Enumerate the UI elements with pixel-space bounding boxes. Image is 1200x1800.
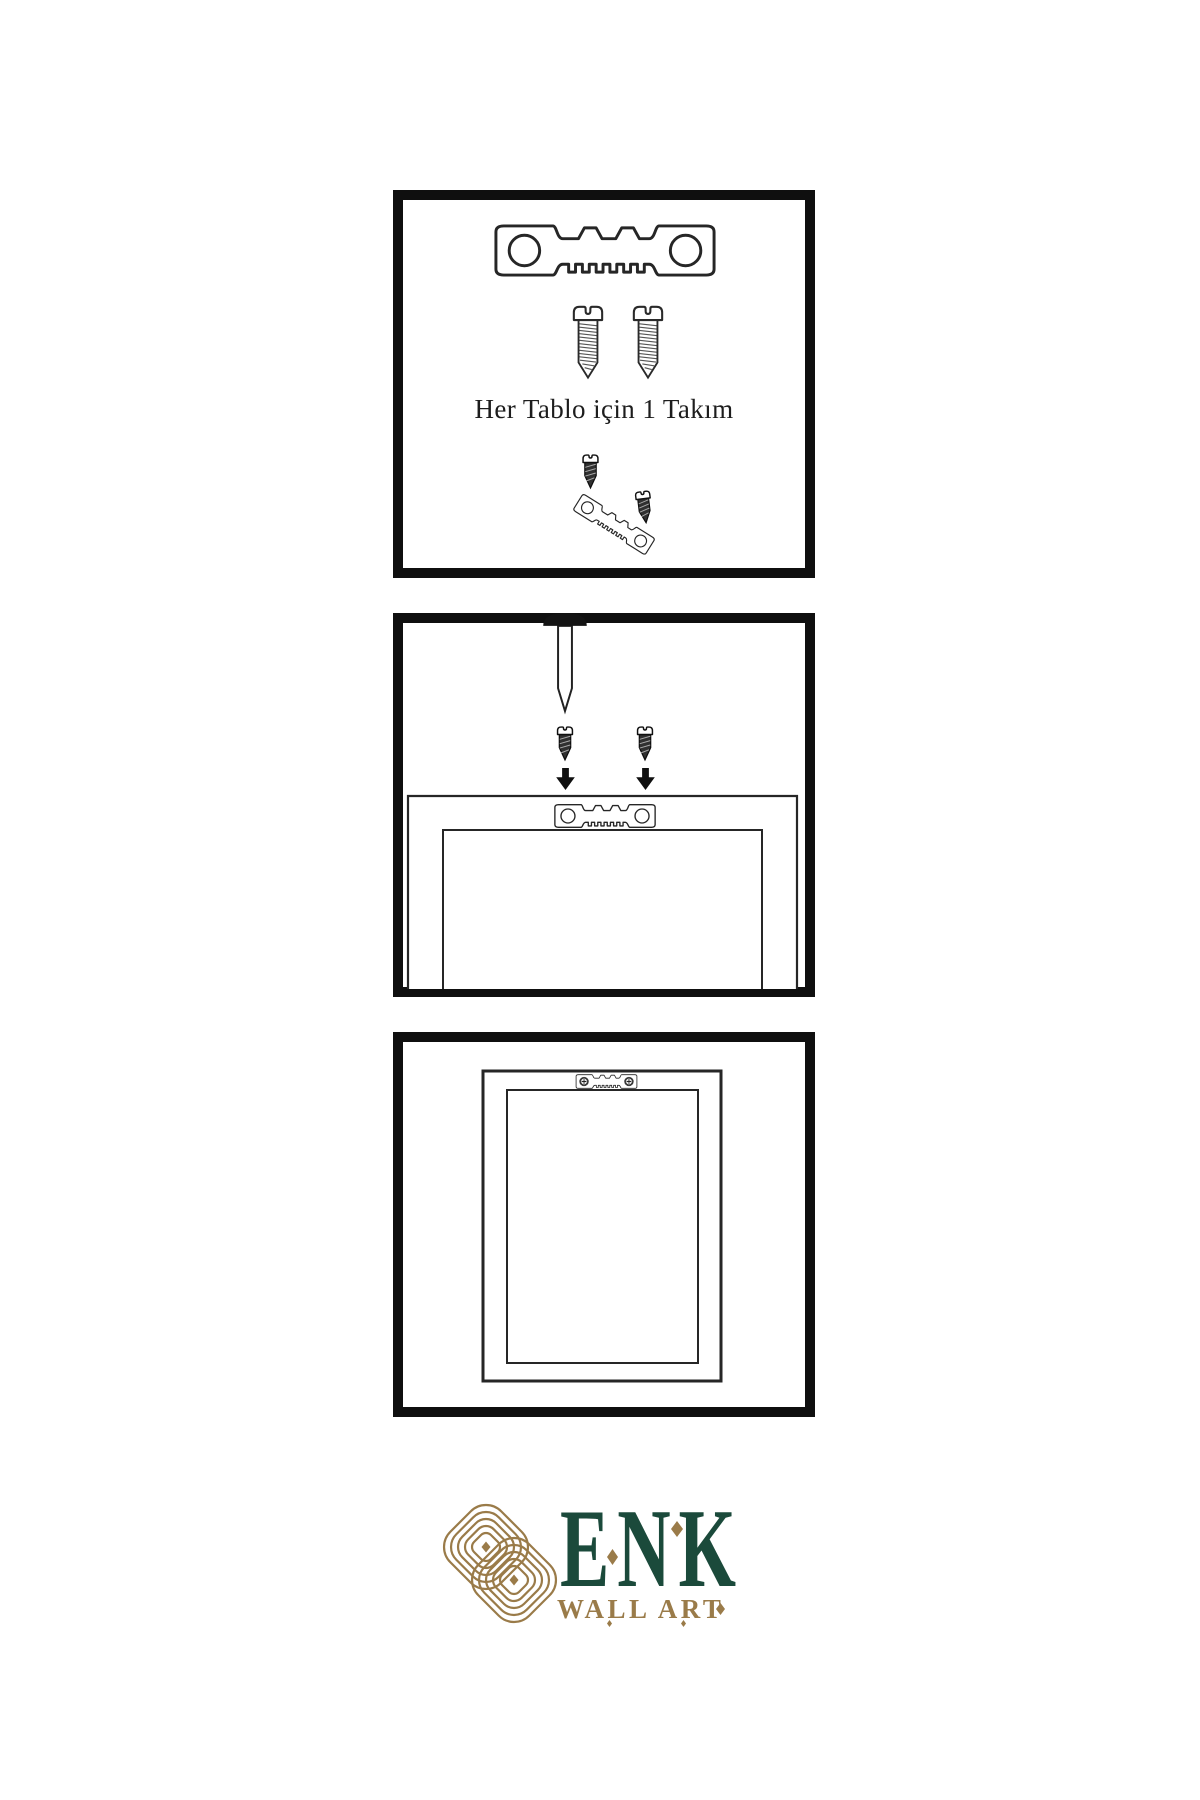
dark-screw-icon xyxy=(635,491,653,524)
step1-panel: Her Tablo için 1 Takım xyxy=(393,190,815,578)
step2-graphic xyxy=(403,613,805,987)
dark-screw-icon xyxy=(558,727,573,760)
step1-graphic xyxy=(403,200,805,568)
down-arrow-icon xyxy=(636,768,655,790)
knot-logo-icon xyxy=(440,1500,560,1627)
brand-name: ENK xyxy=(560,1493,744,1605)
step3-graphic xyxy=(403,1042,805,1407)
step2-panel xyxy=(393,613,815,997)
down-arrow-icon xyxy=(556,768,575,790)
brand-logo: ENK WALL ART xyxy=(430,1490,760,1655)
screw-icon xyxy=(634,307,662,378)
screw-icon xyxy=(574,307,602,378)
step3-panel xyxy=(393,1032,815,1417)
hung-frame-inner-edge xyxy=(507,1090,698,1363)
dark-screw-icon xyxy=(583,455,598,488)
step1-caption: Her Tablo için 1 Takım xyxy=(403,394,805,425)
brand-subtitle: WALL ART xyxy=(557,1596,724,1623)
sawtooth-hanger-icon xyxy=(496,226,714,275)
wall-nail-icon xyxy=(543,613,587,711)
dark-screw-icon xyxy=(638,727,653,760)
frame-back-inner-edge xyxy=(443,830,762,989)
